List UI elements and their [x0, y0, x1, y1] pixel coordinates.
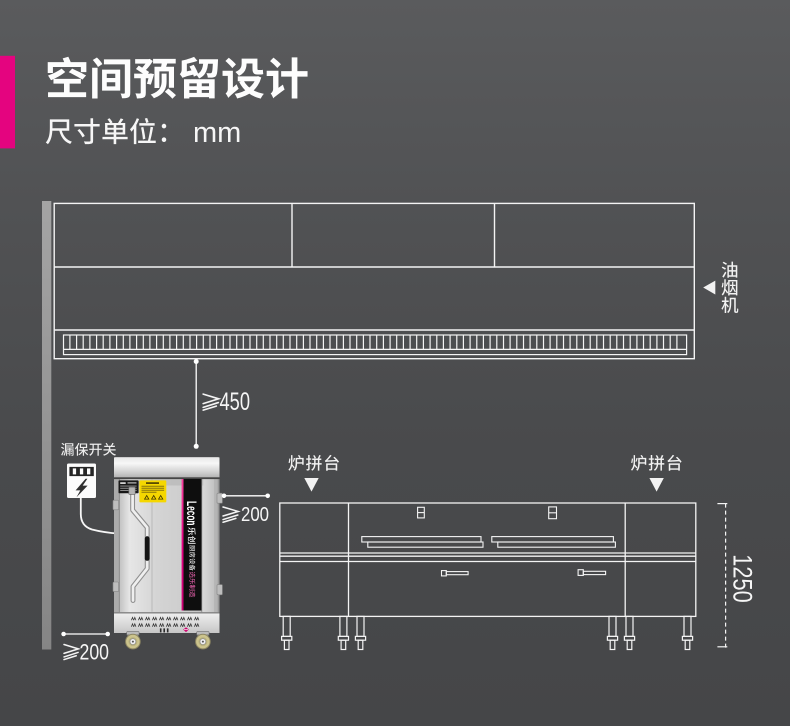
svg-text:200: 200: [241, 503, 269, 526]
svg-text:200: 200: [80, 639, 110, 664]
svg-text:450: 450: [220, 388, 251, 416]
svg-text:1250: 1250: [728, 554, 758, 602]
svg-text:mm: mm: [193, 117, 241, 149]
svg-text:Lecon: Lecon: [184, 501, 200, 526]
